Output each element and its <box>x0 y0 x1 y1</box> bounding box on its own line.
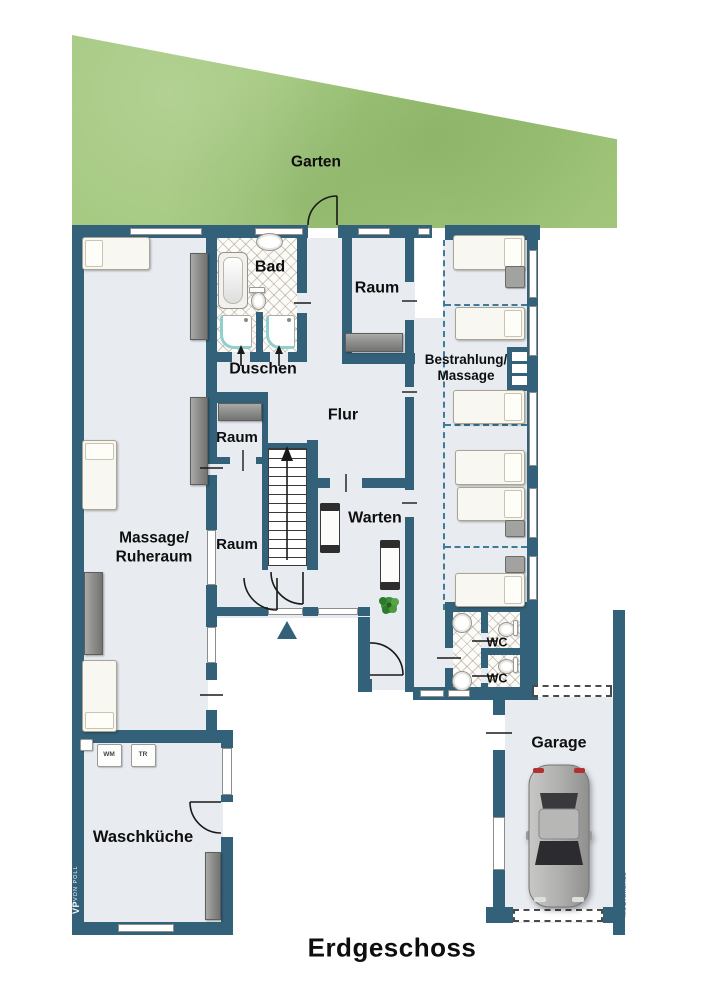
floor-plan: Garten Bad Duschen Raum Flur Raum Raum W… <box>0 0 706 1000</box>
wall-segment <box>493 690 505 715</box>
car-icon <box>526 763 592 909</box>
room-label-bestrahlung-massage: Bestrahlung/ Massage <box>425 352 508 384</box>
watermark-von-poll-name: VON POLL <box>73 866 79 902</box>
rest-bed <box>82 237 150 270</box>
pillow <box>504 490 522 518</box>
shower-tray <box>266 315 295 349</box>
wall-segment <box>358 679 372 692</box>
partition-dashed-line <box>445 546 527 550</box>
room-label-bad: Bad <box>255 257 285 276</box>
nightstand <box>505 556 525 573</box>
waiting-bench <box>320 503 340 553</box>
window <box>529 306 537 356</box>
watermark-mcgrundriss: McGrundriss <box>621 842 633 917</box>
waiting-bench <box>380 540 400 590</box>
treatment-bed <box>453 235 525 270</box>
garage-door-dashed <box>532 685 612 697</box>
floor-title: Erdgeschoss <box>308 932 477 963</box>
wall-segment <box>206 352 232 362</box>
laundry-fixture <box>80 739 93 751</box>
room-label-wc-lower: WC <box>487 672 508 687</box>
room-label-garden: Garten <box>291 154 341 173</box>
window <box>448 690 470 697</box>
wc-toilet-tank <box>513 620 518 636</box>
pillow <box>504 310 522 337</box>
window <box>130 228 202 235</box>
pillow <box>504 576 522 604</box>
bathtub-basin <box>223 257 243 304</box>
window <box>358 228 390 235</box>
garden-area <box>72 35 617 228</box>
wall-segment <box>221 795 233 802</box>
radiator-element <box>512 364 527 373</box>
stairs <box>268 448 307 566</box>
window <box>318 608 358 615</box>
watermark-von-poll: VPVON POLL <box>71 846 85 934</box>
wall-segment <box>303 607 318 616</box>
treatment-bed <box>455 307 525 340</box>
wall-segment <box>362 478 405 488</box>
pillow <box>85 240 103 267</box>
room-label-raum-upper: Raum <box>216 429 258 447</box>
wall-segment <box>481 612 488 633</box>
room-label-raum-top: Raum <box>355 278 399 297</box>
room-label-raum-lower: Raum <box>216 536 258 554</box>
window <box>268 608 303 615</box>
room-label-massage-ruheraum: Massage/ Ruheraum <box>116 529 193 566</box>
wall-segment <box>206 710 217 733</box>
wall-segment <box>405 517 414 692</box>
window <box>420 690 444 697</box>
wall-segment <box>520 612 538 692</box>
shower-tray <box>220 315 252 349</box>
window <box>118 924 174 932</box>
wall-segment <box>358 607 370 616</box>
bathtub <box>218 252 248 309</box>
garage-door-dashed <box>513 909 603 922</box>
entrance-marker-icon <box>277 621 297 639</box>
wall-segment <box>206 663 217 680</box>
bath-sink <box>256 233 283 251</box>
wardrobe <box>190 253 208 340</box>
nightstand <box>505 266 525 288</box>
wall-segment <box>486 907 513 923</box>
wall-segment <box>481 648 488 668</box>
laundry-cabinet <box>205 852 221 920</box>
wall-segment <box>405 238 414 282</box>
treatment-bed <box>455 450 525 485</box>
washroom-sink <box>452 613 472 633</box>
room-label-massage-line1: Massage/ <box>116 529 193 548</box>
wall-segment <box>405 320 414 387</box>
appliance-label-tr: TR <box>139 751 148 759</box>
room-label-wc-upper: WC <box>487 636 508 651</box>
window <box>529 392 537 466</box>
wall-segment <box>206 457 230 464</box>
room-label-warten: Warten <box>348 508 402 527</box>
toilet-bowl <box>251 292 266 310</box>
wall-segment <box>307 440 318 570</box>
room-label-garage: Garage <box>531 733 586 752</box>
wall-segment <box>72 225 84 935</box>
wall-segment <box>206 392 262 403</box>
pillow <box>504 393 522 421</box>
treatment-bed <box>457 487 525 521</box>
radiator-element <box>512 376 527 385</box>
rest-bed <box>82 660 117 732</box>
wc-toilet-tank <box>513 657 518 673</box>
wardrobe <box>84 572 103 655</box>
room-label-massage-line2: Ruheraum <box>116 548 193 567</box>
wall-segment <box>297 238 307 293</box>
window <box>529 488 537 538</box>
watermark-von-poll-initials: VP <box>71 901 81 914</box>
nightstand <box>505 520 525 537</box>
wall-segment <box>206 585 217 627</box>
window <box>493 817 505 870</box>
treatment-bed <box>453 390 525 424</box>
partition-dashed-line <box>445 424 527 428</box>
room-label-flur: Flur <box>328 405 358 424</box>
wall-segment <box>221 730 233 748</box>
rest-bed <box>82 440 117 510</box>
pillow <box>85 712 114 729</box>
window <box>418 228 430 235</box>
room-label-bestrahlung-line1: Bestrahlung/ <box>425 352 508 368</box>
pillow <box>504 238 522 267</box>
washroom-sink <box>452 671 472 691</box>
window <box>529 250 537 298</box>
appliance-label-wm: WM <box>103 751 115 759</box>
wall-segment <box>206 607 268 616</box>
wall-segment <box>315 478 330 488</box>
pillow <box>504 453 522 482</box>
wardrobe <box>190 397 208 485</box>
wall-segment <box>405 397 414 490</box>
window <box>222 748 232 795</box>
window <box>207 530 216 585</box>
pillow <box>85 443 114 460</box>
room-label-waschkueche: Waschküche <box>93 828 193 848</box>
window <box>529 556 537 600</box>
wall-segment <box>493 750 505 817</box>
room-label-bestrahlung-line2: Massage <box>425 368 508 384</box>
sideboard <box>218 403 262 421</box>
sideboard <box>345 333 403 352</box>
room-label-duschen: Duschen <box>229 359 297 378</box>
window <box>207 627 216 663</box>
plant-icon <box>378 594 400 616</box>
radiator-element <box>512 352 527 361</box>
wall-segment <box>493 870 505 910</box>
treatment-bed <box>455 573 525 607</box>
wall-segment <box>221 837 233 923</box>
